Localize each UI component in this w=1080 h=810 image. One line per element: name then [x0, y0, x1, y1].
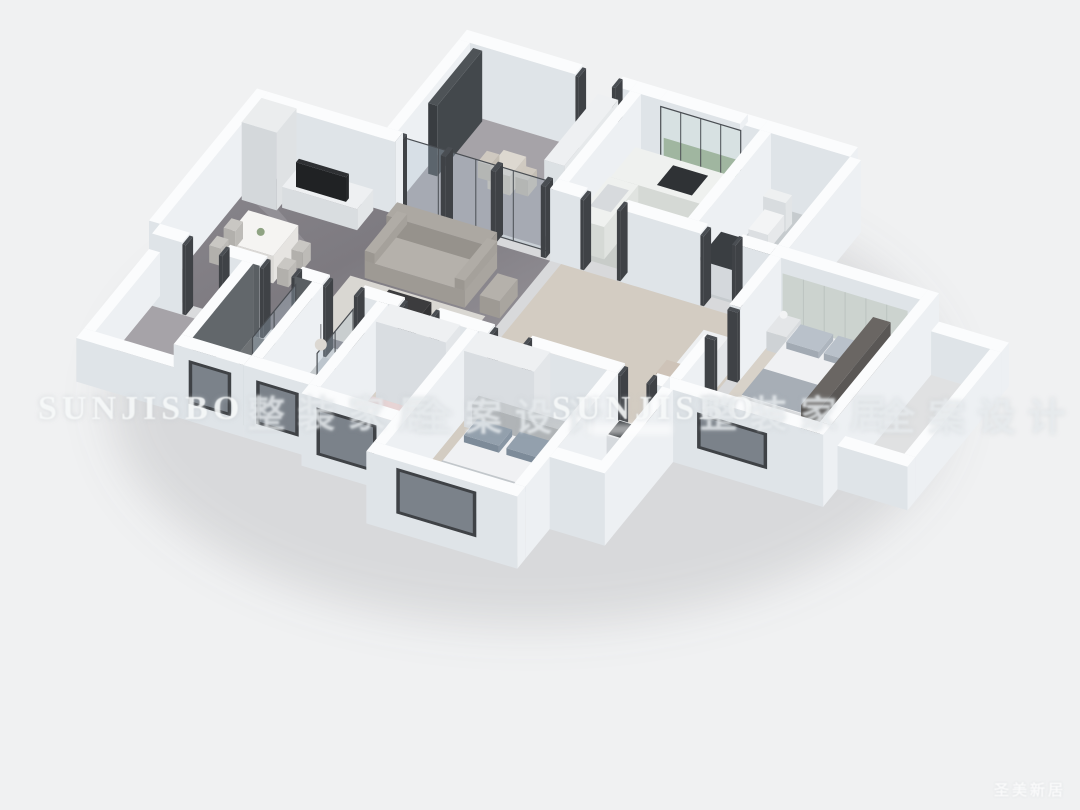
- floorplan-render-canvas: SUNJISBO整装家居全案设计SUNJISBO整装家居全案设计 圣美新居: [0, 0, 1080, 810]
- glass-door-frame: [496, 163, 503, 243]
- wall: [550, 189, 580, 270]
- door-frame: [617, 210, 621, 281]
- display-cabinet: [242, 122, 277, 210]
- door-frame: [700, 235, 704, 306]
- glass-door-frame: [446, 148, 453, 228]
- round-detail: [780, 311, 788, 319]
- wall: [823, 425, 831, 507]
- wall-face-detail: [253, 264, 260, 338]
- tv: [346, 174, 349, 202]
- wall: [594, 470, 605, 545]
- door-frame: [186, 237, 193, 316]
- round-detail: [257, 228, 265, 236]
- wall: [517, 487, 525, 569]
- door-frame: [727, 310, 737, 383]
- door-frame: [584, 192, 591, 271]
- corner-watermark: 圣美新居: [994, 779, 1066, 800]
- glass-door-frame: [541, 185, 546, 258]
- door-frame: [704, 228, 711, 307]
- round-detail: [315, 339, 327, 351]
- door-frame: [580, 199, 584, 270]
- floorplan-3d-render: [0, 0, 1080, 810]
- door-frame: [182, 244, 186, 315]
- watermark-sublabel-blur: [586, 424, 672, 435]
- door-frame: [737, 310, 740, 383]
- door-frame: [620, 203, 627, 282]
- dining-chair: [277, 267, 289, 288]
- wall: [395, 132, 403, 214]
